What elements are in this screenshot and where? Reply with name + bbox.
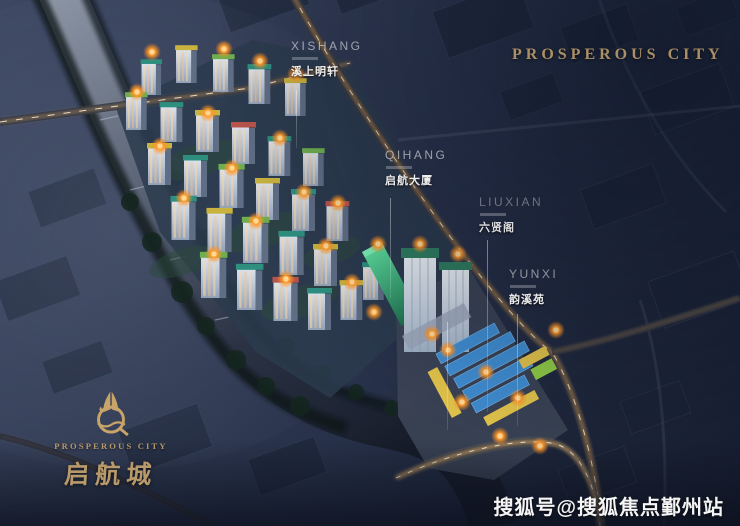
promo-render: PROSPEROUS CITY XISHANG 溪上明轩 QIHANG 启航大厦…: [0, 0, 740, 526]
project-logo: PROSPEROUS CITY 启航城: [38, 388, 184, 491]
label-xishang: XISHANG 溪上明轩: [291, 40, 363, 78]
label-yunxi-en: YUNXI: [509, 268, 558, 280]
label-qihang-subtitle-bar: [386, 166, 412, 169]
label-liuxian-subtitle-bar: [480, 213, 506, 216]
label-qihang-zh: 启航大厦: [385, 176, 447, 187]
label-xishang-en: XISHANG: [291, 40, 363, 52]
leader-line-qihang: [390, 198, 391, 298]
leader-line-liuxian: [487, 240, 488, 412]
label-yunxi-subtitle-bar: [510, 285, 536, 288]
label-xishang-subtitle-bar: [292, 57, 318, 60]
leader-line-liuxian-2: [447, 322, 448, 430]
leader-line-yunxi: [517, 314, 518, 426]
label-liuxian: LIUXIAN 六贤阁: [479, 196, 543, 234]
leader-line-xishang: [296, 90, 297, 148]
label-qihang-en: QIHANG: [385, 149, 447, 161]
page-title: PROSPEROUS CITY: [512, 46, 727, 64]
logo-name-zh: 启航城: [37, 455, 186, 491]
label-liuxian-en: LIUXIAN: [479, 196, 543, 208]
label-xishang-zh: 溪上明轩: [291, 67, 363, 78]
logo-name-en: PROSPEROUS CITY: [38, 441, 184, 451]
label-qihang: QIHANG 启航大厦: [385, 149, 447, 187]
label-liuxian-zh: 六贤阁: [479, 223, 543, 234]
sohu-watermark: 搜狐号@搜狐焦点鄞州站: [493, 491, 724, 520]
label-yunxi-zh: 韵溪苑: [509, 295, 558, 306]
label-yunxi: YUNXI 韵溪苑: [509, 268, 558, 306]
sail-q-emblem-icon: [89, 388, 133, 438]
